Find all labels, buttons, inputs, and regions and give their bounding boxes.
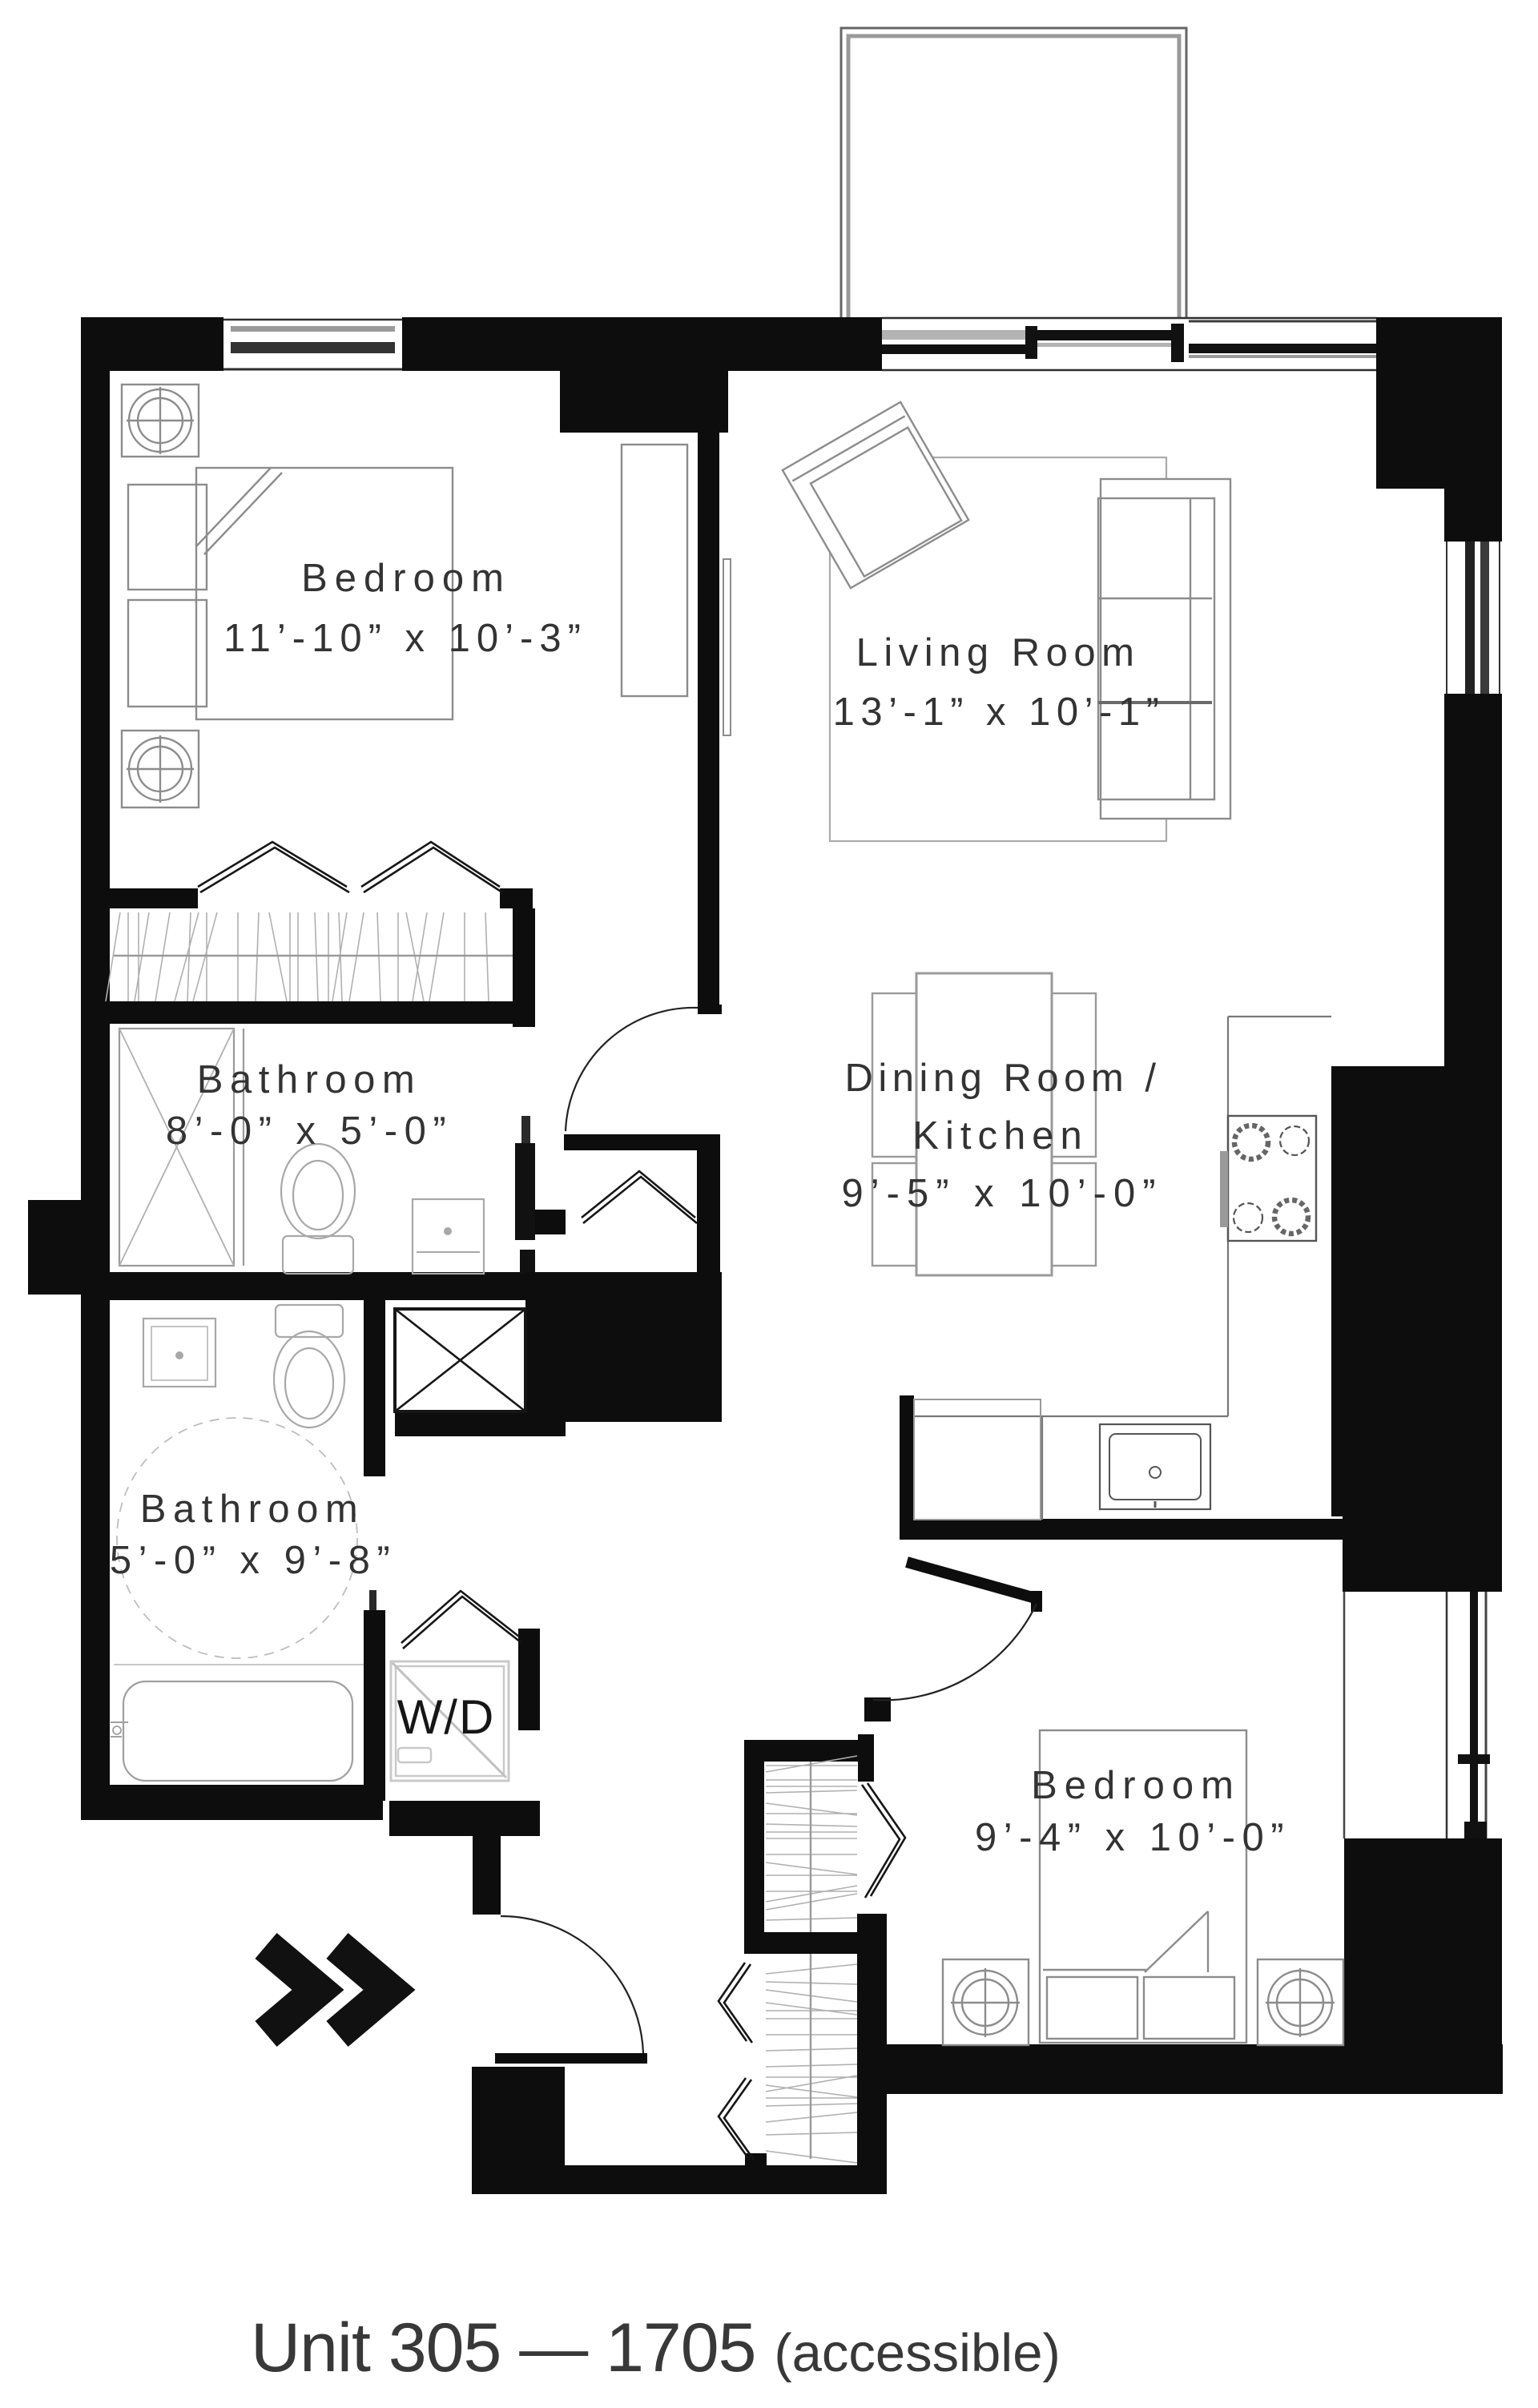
- svg-text:5’-0” x 9’-8”: 5’-0” x 9’-8”: [110, 1539, 397, 1582]
- svg-text:Living Room: Living Room: [856, 631, 1141, 674]
- svg-text:9’-5” x 10’-0”: 9’-5” x 10’-0”: [841, 1172, 1162, 1215]
- svg-text:Bedroom: Bedroom: [1031, 1764, 1241, 1807]
- svg-text:Bedroom: Bedroom: [301, 557, 511, 600]
- svg-text:Bathroom: Bathroom: [197, 1058, 421, 1101]
- svg-text:8’-0” x 5’-0”: 8’-0” x 5’-0”: [166, 1109, 453, 1153]
- svg-text:13’-1” x 10’-1”: 13’-1” x 10’-1”: [833, 691, 1166, 734]
- svg-text:Dining Room /: Dining Room /: [845, 1057, 1162, 1100]
- svg-text:Bathroom: Bathroom: [140, 1488, 364, 1531]
- svg-text:W/D: W/D: [397, 1690, 496, 1744]
- svg-text:Kitchen: Kitchen: [912, 1114, 1088, 1158]
- svg-text:9’-4” x 10’-0”: 9’-4” x 10’-0”: [975, 1816, 1290, 1859]
- svg-text:11’-10” x 10’-3”: 11’-10” x 10’-3”: [223, 617, 587, 660]
